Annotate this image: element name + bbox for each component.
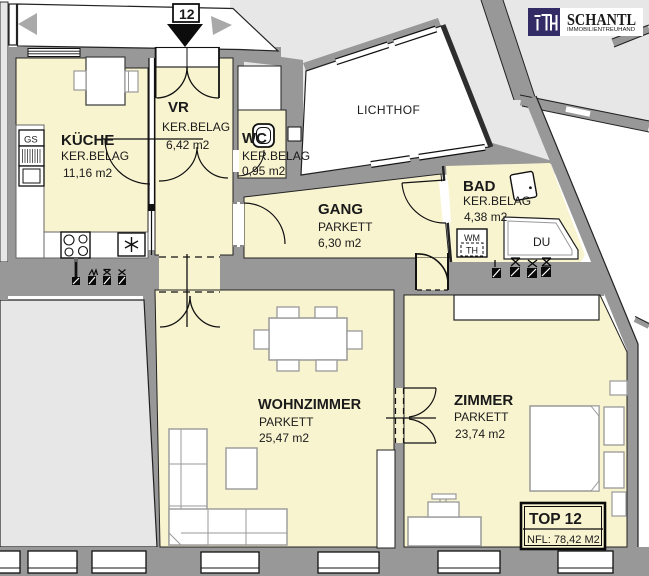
- svg-text:LICHTHOF: LICHTHOF: [357, 103, 420, 117]
- svg-text:ZIMMER: ZIMMER: [454, 392, 513, 409]
- svg-text:KÜCHE: KÜCHE: [61, 132, 114, 149]
- svg-text:11,16 m2: 11,16 m2: [63, 166, 112, 180]
- svg-text:KER.BELAG: KER.BELAG: [61, 149, 129, 163]
- svg-text:PARKETT: PARKETT: [318, 220, 373, 234]
- svg-text:IMMOBILIENTREUHAND: IMMOBILIENTREUHAND: [567, 27, 635, 33]
- svg-text:KER.BELAG: KER.BELAG: [242, 149, 310, 163]
- svg-text:WM: WM: [464, 233, 480, 243]
- svg-text:PARKETT: PARKETT: [259, 415, 314, 429]
- svg-text:VR: VR: [168, 99, 189, 116]
- svg-text:TH: TH: [466, 246, 478, 256]
- svg-text:6,30 m2: 6,30 m2: [318, 236, 362, 250]
- svg-text:WC: WC: [242, 130, 267, 147]
- svg-text:WOHNZIMMER: WOHNZIMMER: [258, 397, 362, 413]
- svg-text:6,42 m2: 6,42 m2: [166, 138, 210, 152]
- svg-text:NFL: 78,42 M2: NFL: 78,42 M2: [527, 534, 600, 546]
- svg-text:BAD: BAD: [463, 178, 496, 195]
- svg-text:0,95 m2: 0,95 m2: [242, 164, 286, 178]
- svg-text:TOP 12: TOP 12: [529, 511, 582, 528]
- svg-text:KER.BELAG: KER.BELAG: [162, 120, 230, 134]
- svg-text:KER.BELAG: KER.BELAG: [463, 194, 531, 208]
- svg-text:DU: DU: [533, 235, 550, 249]
- svg-text:12: 12: [179, 6, 195, 22]
- svg-text:GANG: GANG: [318, 201, 363, 218]
- svg-text:4,38 m2: 4,38 m2: [464, 210, 508, 224]
- svg-text:25,47 m2: 25,47 m2: [259, 431, 309, 445]
- svg-text:23,74 m2: 23,74 m2: [455, 427, 505, 441]
- svg-text:PARKETT: PARKETT: [454, 410, 509, 424]
- svg-text:GS: GS: [24, 135, 38, 146]
